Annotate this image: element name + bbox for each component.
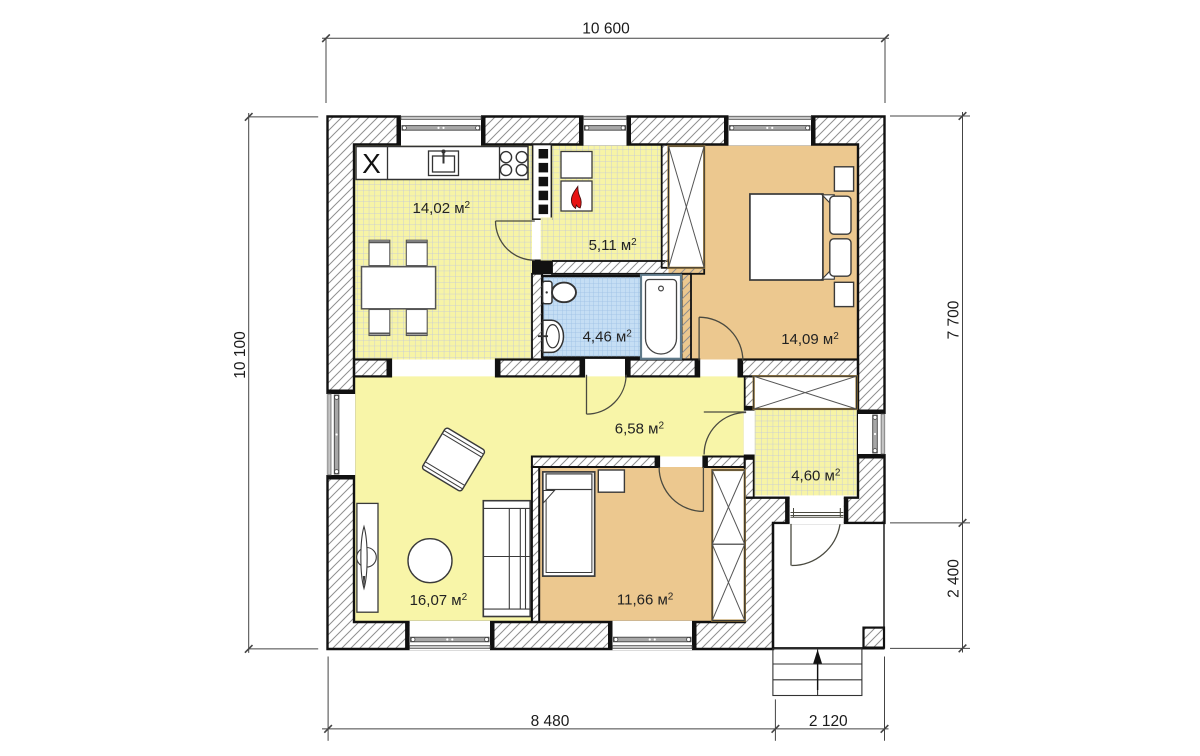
svg-text:8 480: 8 480 [531,713,570,730]
svg-text:4,60 м2: 4,60 м2 [791,468,841,485]
svg-text:4,46 м2: 4,46 м2 [583,329,633,346]
svg-text:2 120: 2 120 [809,713,848,730]
svg-text:16,07 м2: 16,07 м2 [410,592,468,609]
svg-text:2 400: 2 400 [946,559,963,598]
svg-text:X: X [362,148,381,179]
svg-text:5,11 м2: 5,11 м2 [589,237,638,254]
svg-text:10 100: 10 100 [232,331,249,379]
svg-text:11,66 м2: 11,66 м2 [617,592,674,609]
svg-text:14,09 м2: 14,09 м2 [781,331,839,348]
svg-text:7 700: 7 700 [946,300,963,339]
svg-text:6,58 м2: 6,58 м2 [615,421,665,438]
svg-text:14,02 м2: 14,02 м2 [413,200,471,217]
svg-text:10 600: 10 600 [582,21,630,38]
